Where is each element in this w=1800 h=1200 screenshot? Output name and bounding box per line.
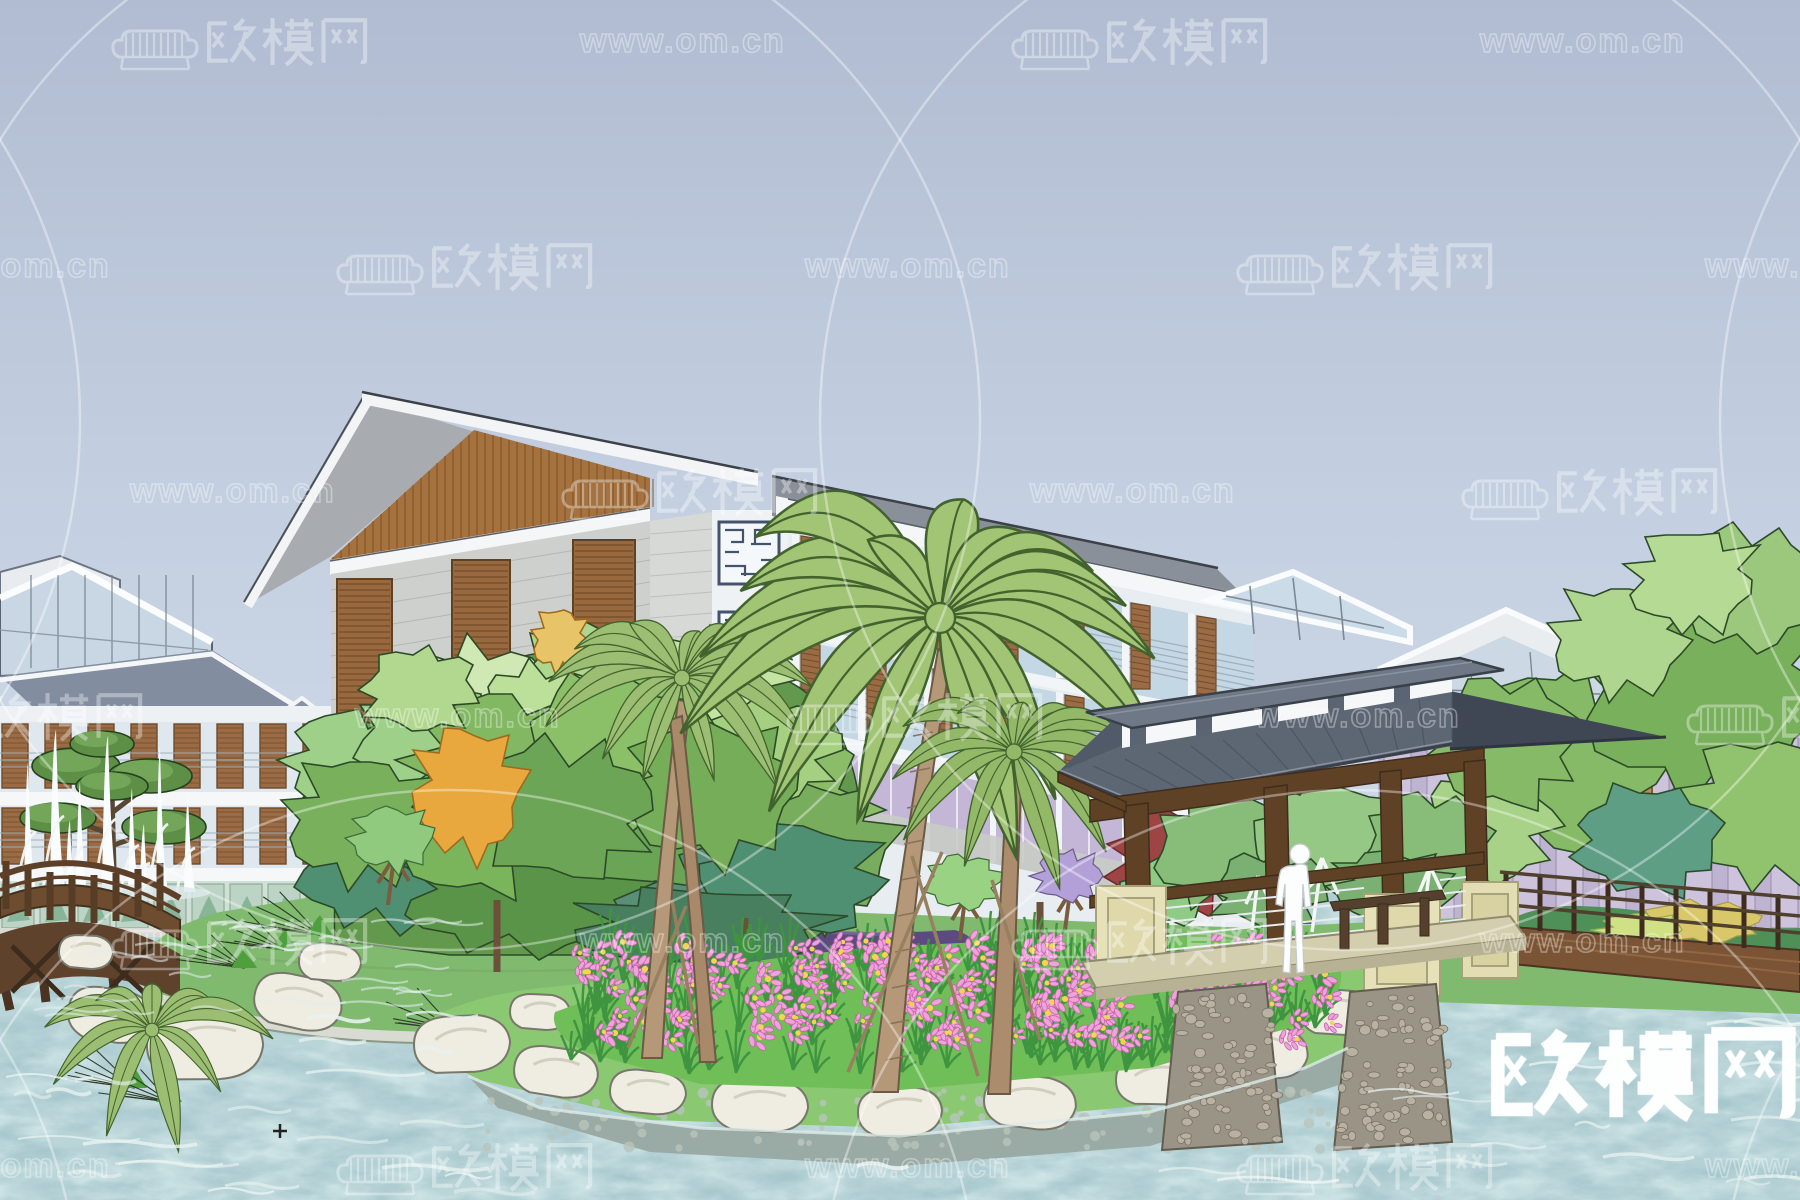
svg-text:www.om.cn: www.om.cn xyxy=(354,697,561,735)
svg-text:www.om.cn: www.om.cn xyxy=(0,247,111,285)
svg-text:www.om.cn: www.om.cn xyxy=(1704,247,1800,285)
svg-text:www.om.cn: www.om.cn xyxy=(1704,1147,1800,1185)
svg-text:www.om.cn: www.om.cn xyxy=(1029,472,1236,510)
svg-text:www.om.cn: www.om.cn xyxy=(1479,922,1686,960)
svg-text:www.om.cn: www.om.cn xyxy=(0,1147,111,1185)
svg-text:www.om.cn: www.om.cn xyxy=(579,22,786,60)
svg-text:www.om.cn: www.om.cn xyxy=(129,472,336,510)
svg-text:www.om.cn: www.om.cn xyxy=(804,1147,1011,1185)
svg-text:www.om.cn: www.om.cn xyxy=(804,247,1011,285)
svg-text:www.om.cn: www.om.cn xyxy=(1254,697,1461,735)
svg-text:www.om.cn: www.om.cn xyxy=(1479,22,1686,60)
svg-text:www.om.cn: www.om.cn xyxy=(579,922,786,960)
